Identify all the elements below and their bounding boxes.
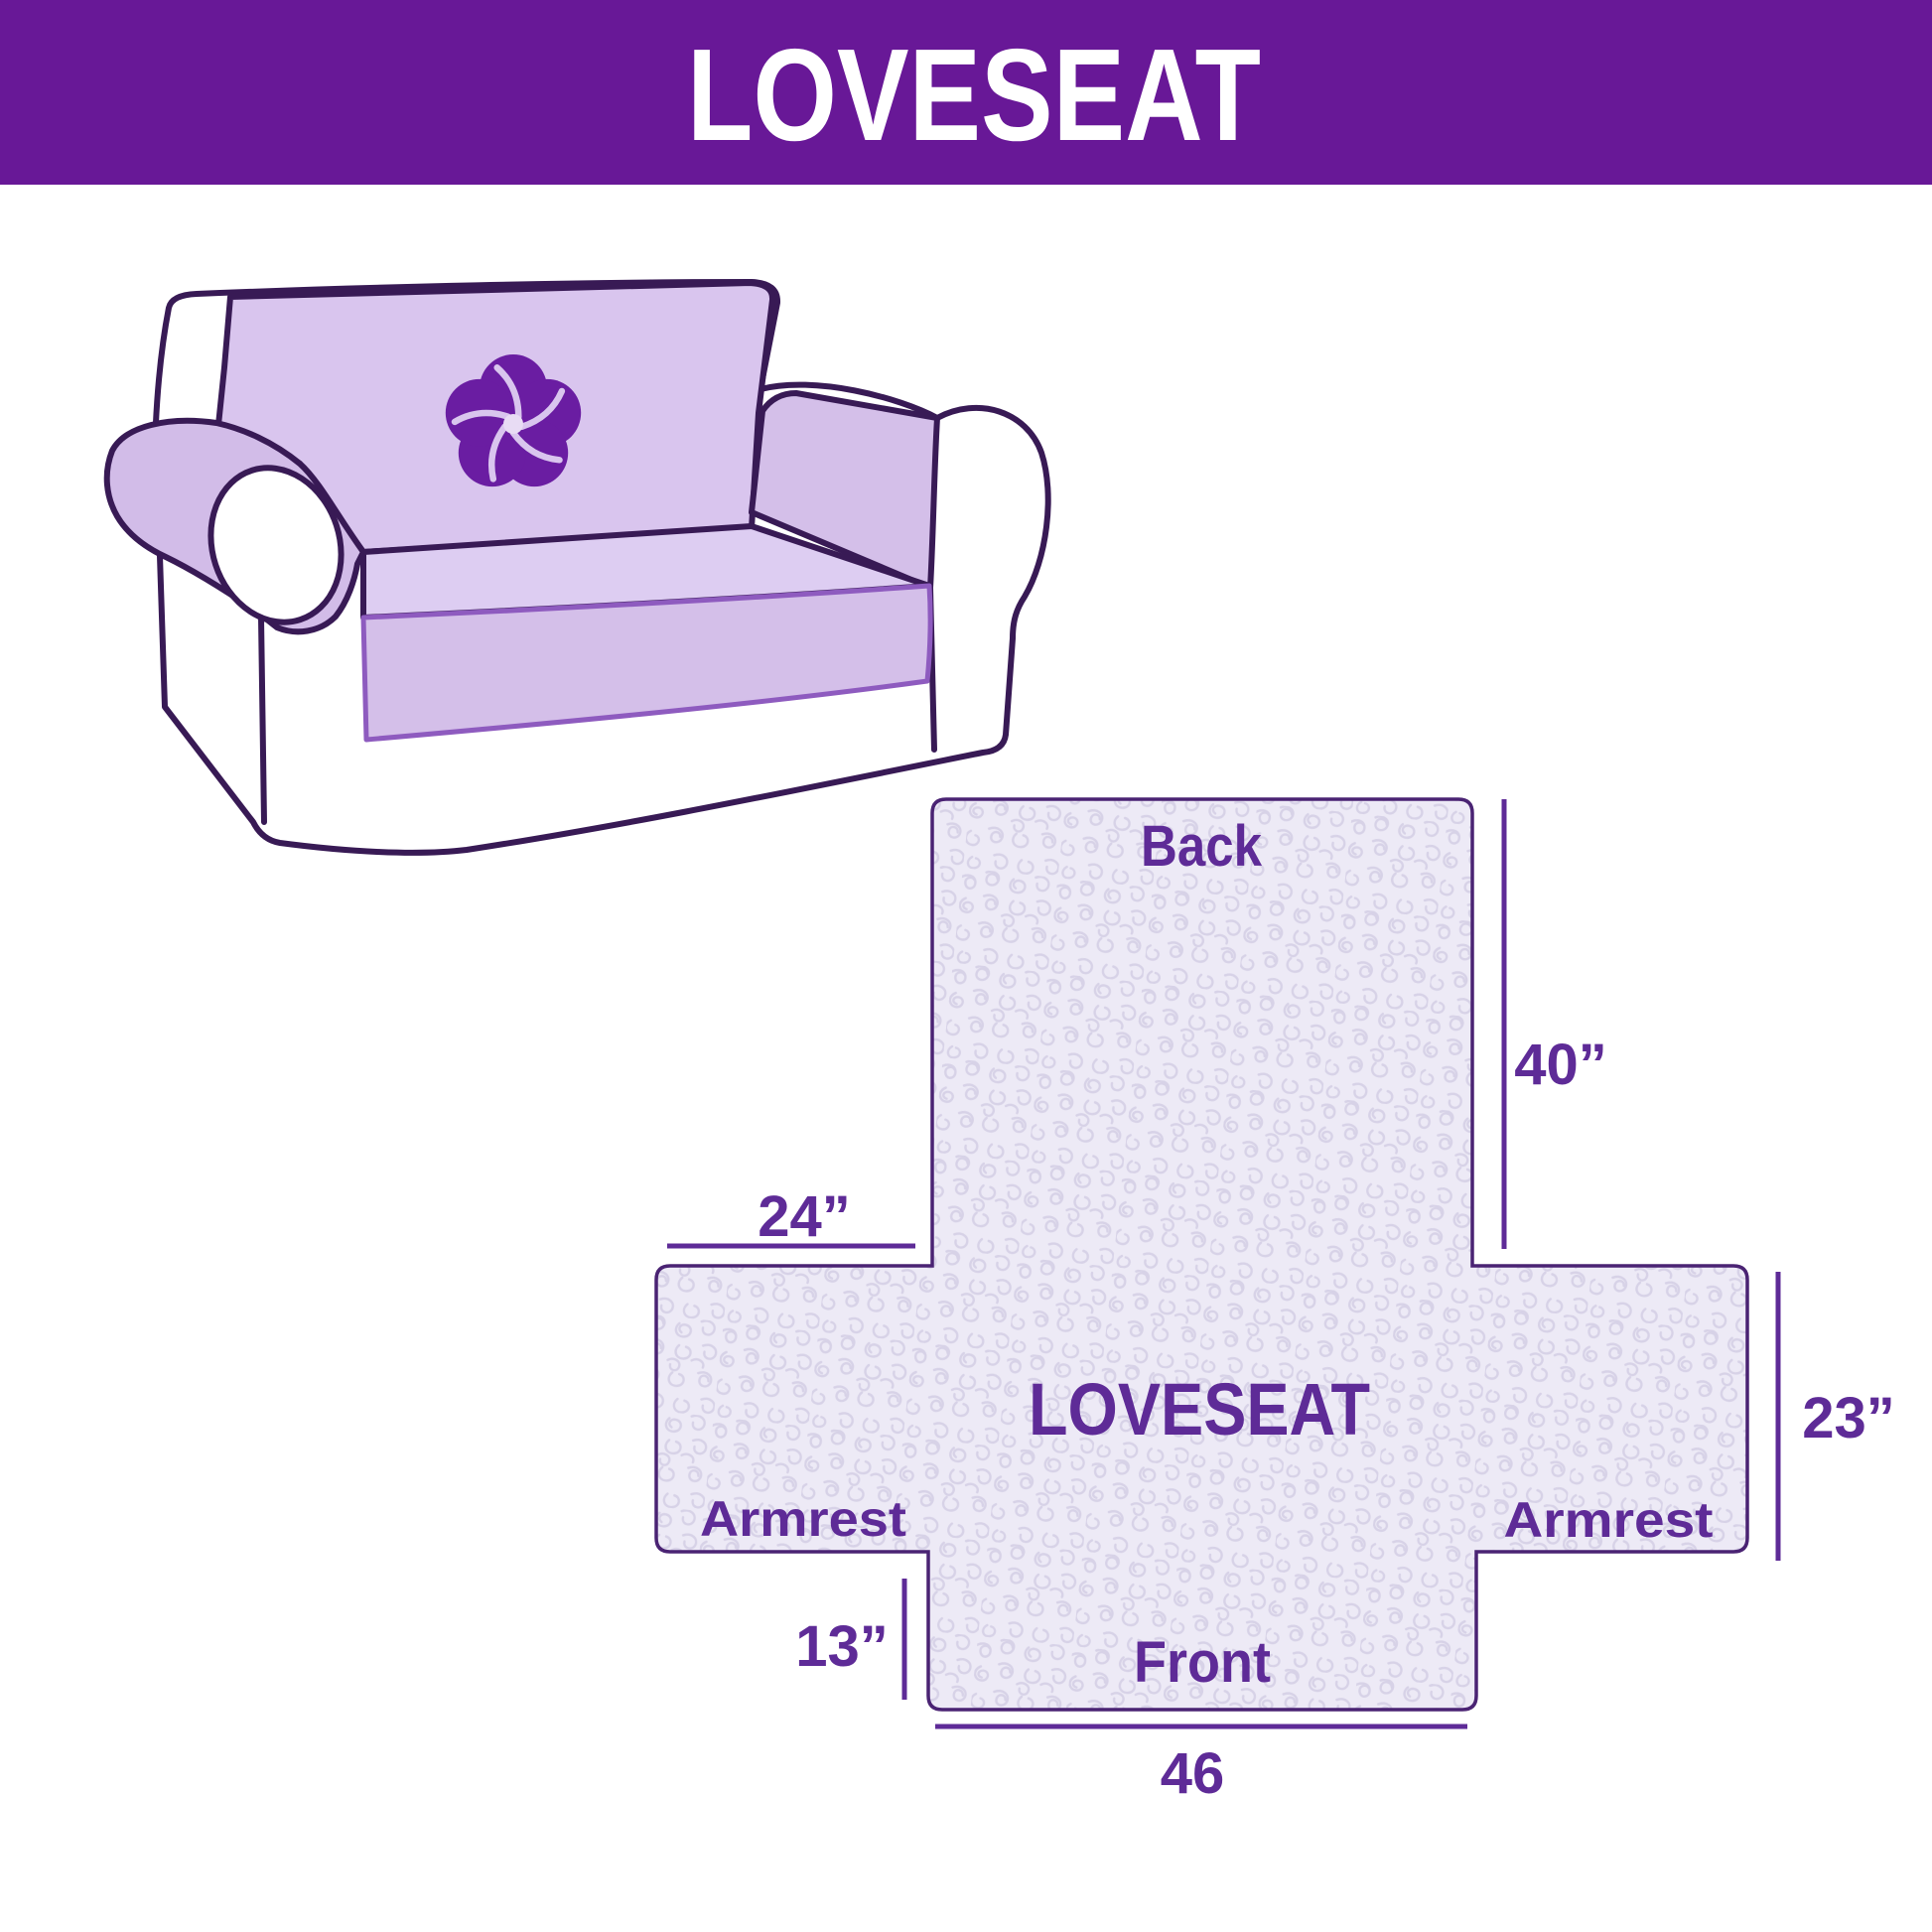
- svg-text:LOVESEAT: LOVESEAT: [1029, 1368, 1370, 1450]
- svg-text:13”: 13”: [795, 1614, 889, 1679]
- svg-text:46: 46: [1161, 1741, 1225, 1806]
- svg-text:Front: Front: [1134, 1630, 1271, 1695]
- svg-text:40”: 40”: [1514, 1033, 1607, 1097]
- svg-text:Armrest: Armrest: [700, 1491, 906, 1547]
- svg-text:LOVESEAT: LOVESEAT: [687, 22, 1261, 168]
- svg-text:23”: 23”: [1802, 1386, 1895, 1450]
- svg-text:Armrest: Armrest: [1504, 1492, 1714, 1548]
- svg-text:24”: 24”: [758, 1184, 851, 1249]
- svg-text:Back: Back: [1141, 814, 1263, 879]
